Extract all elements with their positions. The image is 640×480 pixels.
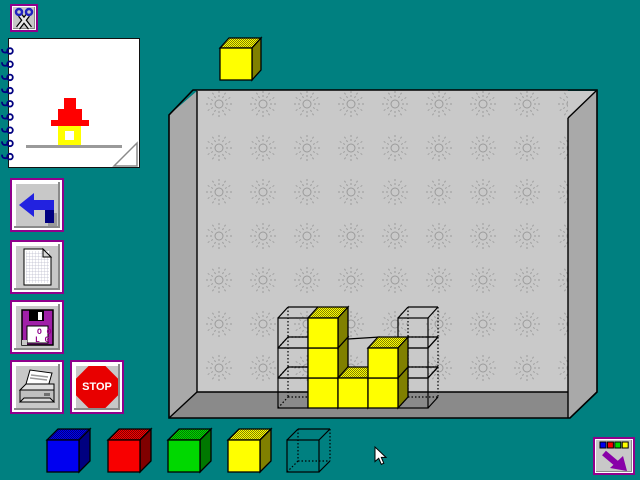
ring-icon [7, 141, 13, 147]
spiral-binding [2, 48, 13, 159]
ring-icon [7, 154, 13, 160]
house-roof [58, 109, 82, 120]
build-area[interactable] [169, 90, 597, 418]
new-page-button[interactable] [10, 240, 64, 294]
cube-front [368, 348, 398, 378]
save-button[interactable]: O O L G [10, 300, 64, 354]
stop-label: STOP [82, 381, 112, 393]
wire-edge [287, 461, 298, 472]
scissors-icon [12, 6, 36, 30]
arrow-down-right-icon [597, 441, 631, 471]
cube-front [308, 348, 338, 378]
print-button[interactable] [10, 360, 64, 414]
block-blue[interactable] [47, 429, 90, 472]
cube-front [228, 440, 260, 472]
mouse-cursor [375, 447, 386, 464]
cube-front [220, 48, 252, 80]
palette-square [600, 442, 606, 448]
notepad[interactable] [8, 38, 140, 168]
cube-front [108, 440, 140, 472]
stop-button[interactable]: STOP [70, 360, 124, 414]
block-wireframe[interactable] [287, 429, 330, 472]
palette-square [607, 442, 613, 448]
palette-square [615, 442, 621, 448]
wire-edge [319, 429, 330, 440]
ring-icon [7, 61, 13, 67]
wire-edge [287, 429, 298, 440]
house-drawing [26, 98, 122, 148]
block-palette [47, 429, 330, 472]
ground-line [26, 145, 122, 148]
left-wall [169, 91, 197, 418]
blank-page-icon [14, 244, 60, 290]
house-window [65, 131, 74, 140]
cube-front [308, 378, 338, 408]
right-wall [568, 91, 597, 418]
cube-front [368, 378, 398, 408]
grid-block-yellow[interactable] [308, 307, 348, 348]
cube-front [47, 440, 79, 472]
cube-front [168, 440, 200, 472]
ring-icon [7, 88, 13, 94]
undo-arrow-icon [14, 182, 60, 228]
stop-sign: STOP [76, 366, 118, 408]
house-roof [64, 98, 76, 109]
palette-switch-button[interactable] [593, 437, 635, 475]
ring-icon [7, 75, 13, 81]
wire-edge [319, 461, 330, 472]
block-yellow[interactable] [228, 429, 271, 472]
block-green[interactable] [168, 429, 211, 472]
cut-button[interactable] [10, 4, 38, 32]
cube-front [338, 378, 368, 408]
undo-button[interactable] [10, 178, 64, 232]
grid-block-yellow[interactable] [368, 337, 408, 378]
printer-icon [14, 364, 60, 410]
color-squares [600, 442, 628, 448]
floating-block-yellow[interactable] [220, 38, 261, 80]
floppy-label-line2: L G [35, 337, 49, 345]
block-red[interactable] [108, 429, 151, 472]
app-canvas: O O L G STOP [0, 0, 640, 480]
ring-icon [7, 114, 13, 120]
ring-icon [7, 127, 13, 133]
palette-square [622, 442, 628, 448]
wire-front [287, 440, 319, 472]
cube-front [308, 318, 338, 348]
ring-icon [7, 48, 13, 54]
notepad-drawing [1, 39, 141, 167]
ring-icon [7, 101, 13, 107]
house-roof [51, 120, 89, 126]
